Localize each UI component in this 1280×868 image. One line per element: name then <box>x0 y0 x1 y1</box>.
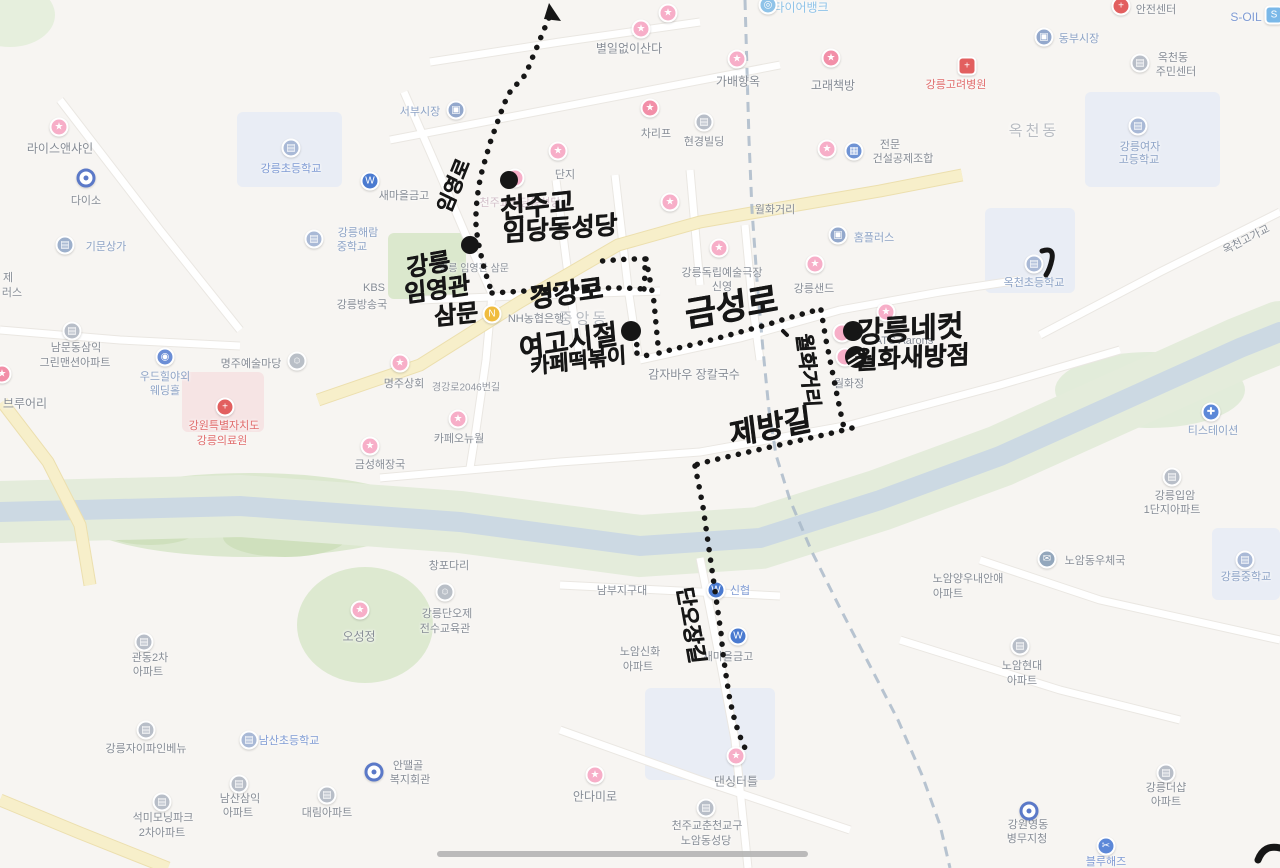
handwritten-annotation: 월화새방점 <box>854 335 969 377</box>
map-canvas[interactable]: 라이스앤샤인다이소기문상가제러스서부시장새마을금고강릉초등학교강릉해람중학교KB… <box>0 0 1280 868</box>
handwritten-annotation: 임영로 <box>429 153 476 217</box>
handwritten-annotation: 삼문 <box>433 292 478 332</box>
scroll-indicator[interactable] <box>437 851 808 857</box>
handwritten-annotation: 임당동성당 <box>503 205 618 249</box>
handwriting-layer: 임영로천주교임당동성당강릉임영관삼문경강로여고시절카페떡볶이금성로강릉네컷월화새… <box>0 0 1280 868</box>
handwritten-annotation: 금성로 <box>682 271 780 336</box>
handwritten-annotation: 제방길 <box>727 394 814 454</box>
handwritten-annotation: 단오장길 <box>670 585 713 664</box>
handwritten-annotation: 경강로 <box>528 266 605 315</box>
